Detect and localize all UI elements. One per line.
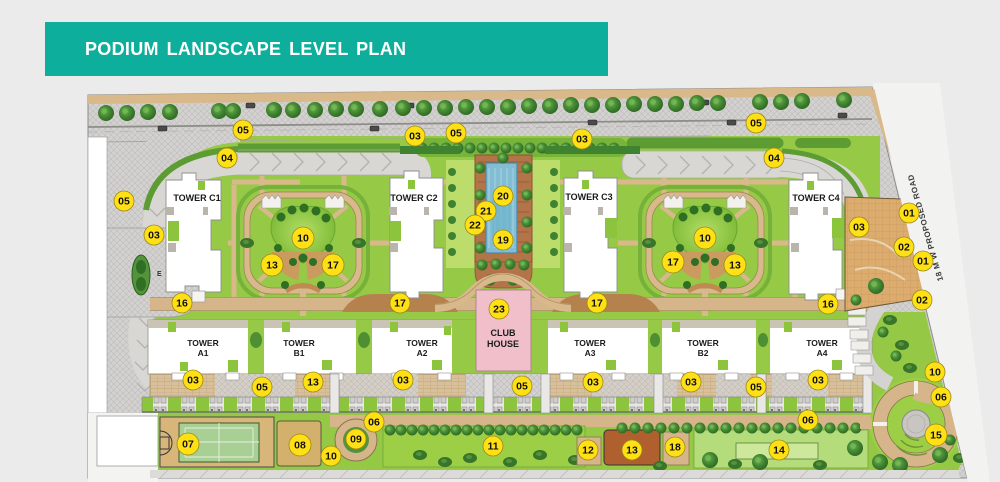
svg-text:05: 05: [256, 382, 268, 394]
svg-text:11: 11: [487, 441, 498, 453]
svg-text:03: 03: [576, 134, 588, 146]
svg-text:TOWER: TOWER: [687, 338, 718, 348]
svg-text:06: 06: [802, 415, 814, 427]
svg-text:03: 03: [187, 375, 199, 387]
svg-text:17: 17: [394, 298, 406, 310]
svg-text:03: 03: [587, 377, 599, 389]
svg-text:E: E: [157, 271, 162, 278]
svg-text:04: 04: [221, 153, 233, 165]
svg-text:13: 13: [729, 260, 741, 272]
svg-text:03: 03: [397, 375, 409, 387]
svg-text:13: 13: [307, 377, 319, 389]
svg-text:12: 12: [582, 445, 594, 457]
svg-text:TOWER C1: TOWER C1: [173, 193, 220, 203]
svg-text:TOWER C2: TOWER C2: [390, 193, 437, 203]
svg-text:21: 21: [480, 206, 492, 218]
svg-text:20: 20: [497, 191, 509, 203]
svg-text:03: 03: [812, 375, 824, 387]
svg-text:A2: A2: [417, 348, 428, 358]
svg-text:TOWER: TOWER: [574, 338, 605, 348]
svg-text:05: 05: [750, 382, 762, 394]
svg-text:TOWER C3: TOWER C3: [565, 192, 612, 202]
svg-text:17: 17: [591, 298, 603, 310]
svg-text:10: 10: [699, 233, 711, 245]
svg-text:01: 01: [903, 208, 915, 220]
svg-text:03: 03: [853, 222, 865, 234]
svg-text:A3: A3: [585, 348, 596, 358]
svg-text:HOUSE: HOUSE: [487, 339, 519, 349]
svg-text:07: 07: [182, 439, 194, 451]
svg-text:TOWER C4: TOWER C4: [792, 193, 839, 203]
svg-text:05: 05: [750, 118, 762, 130]
svg-text:14: 14: [773, 445, 785, 457]
svg-text:09: 09: [350, 434, 362, 446]
svg-text:05: 05: [450, 128, 462, 140]
svg-text:TOWER: TOWER: [806, 338, 837, 348]
svg-text:22: 22: [469, 220, 481, 232]
svg-text:06: 06: [368, 417, 380, 429]
svg-text:PODIUM LANDSCAPE LEVEL PLAN: PODIUM LANDSCAPE LEVEL PLAN: [85, 39, 406, 59]
svg-text:B2: B2: [698, 348, 709, 358]
svg-text:08: 08: [294, 440, 306, 452]
svg-text:03: 03: [148, 230, 160, 242]
svg-text:18: 18: [669, 442, 681, 454]
svg-text:23: 23: [493, 304, 505, 316]
svg-text:10: 10: [325, 451, 337, 463]
svg-text:TOWER: TOWER: [283, 338, 314, 348]
svg-text:06: 06: [935, 392, 947, 404]
svg-text:03: 03: [409, 131, 421, 143]
svg-text:10: 10: [929, 367, 941, 379]
svg-text:A4: A4: [817, 348, 828, 358]
svg-text:10: 10: [297, 233, 309, 245]
svg-text:16: 16: [176, 298, 188, 310]
svg-text:16: 16: [822, 299, 834, 311]
svg-text:02: 02: [916, 295, 928, 307]
svg-text:17: 17: [327, 260, 339, 272]
svg-text:13: 13: [266, 260, 278, 272]
svg-text:02: 02: [898, 242, 910, 254]
svg-text:13: 13: [626, 445, 638, 457]
svg-text:03: 03: [685, 377, 697, 389]
svg-text:05: 05: [516, 381, 528, 393]
svg-text:05: 05: [118, 196, 130, 208]
svg-text:TOWER: TOWER: [187, 338, 218, 348]
svg-text:17: 17: [667, 257, 679, 269]
svg-text:04: 04: [768, 153, 780, 165]
svg-text:15: 15: [930, 430, 942, 442]
svg-text:CLUB: CLUB: [491, 328, 516, 338]
svg-text:01: 01: [917, 256, 929, 268]
svg-text:19: 19: [497, 235, 509, 247]
svg-text:05: 05: [237, 125, 249, 137]
svg-text:B1: B1: [294, 348, 305, 358]
svg-text:A1: A1: [198, 348, 209, 358]
svg-text:TOWER: TOWER: [406, 338, 437, 348]
